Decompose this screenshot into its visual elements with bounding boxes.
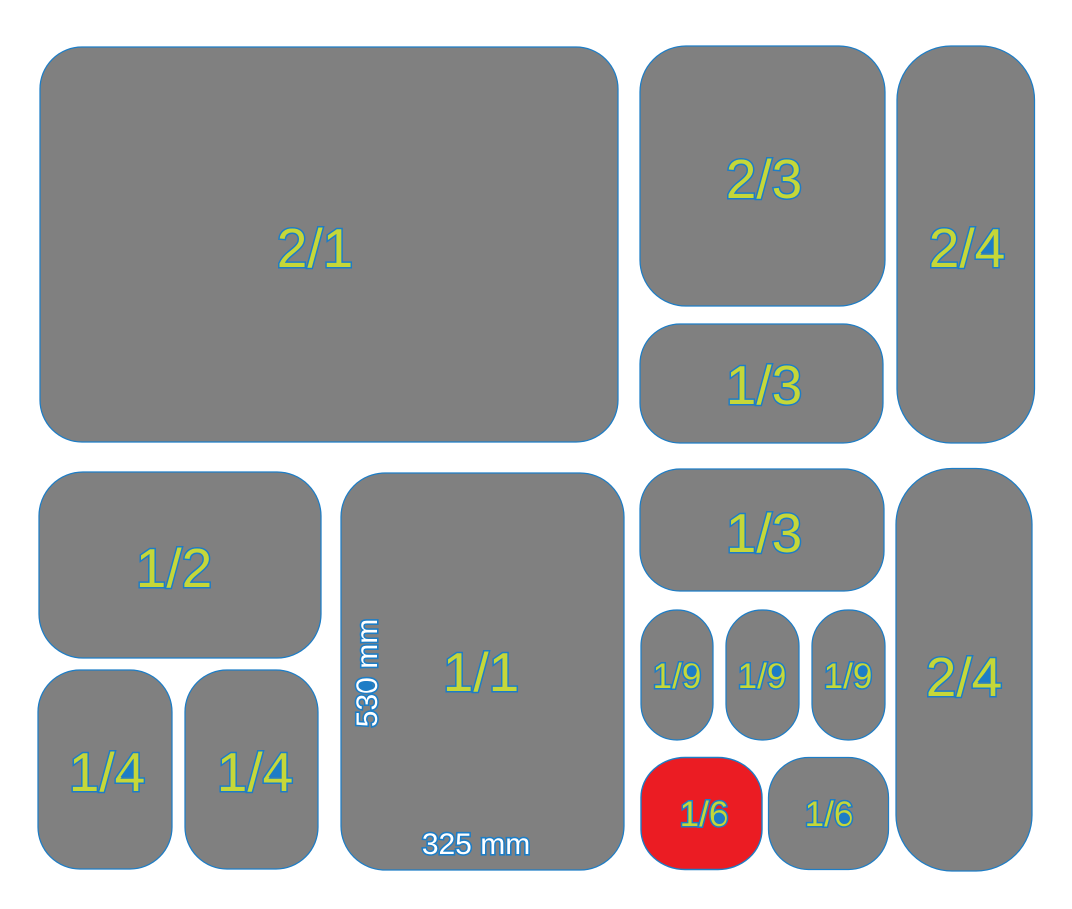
svg-text:2/4: 2/4 — [929, 217, 1005, 279]
svg-text:530 mm: 530 mm — [351, 619, 384, 727]
svg-text:1/9: 1/9 — [653, 657, 702, 696]
svg-text:1/9: 1/9 — [824, 657, 873, 696]
svg-text:2/1: 2/1 — [277, 217, 353, 279]
svg-text:1/4: 1/4 — [217, 741, 293, 803]
svg-text:1/3: 1/3 — [726, 502, 802, 564]
svg-text:325 mm: 325 mm — [422, 828, 530, 861]
svg-text:1/3: 1/3 — [726, 354, 802, 416]
svg-text:2/3: 2/3 — [726, 148, 802, 210]
svg-text:1/1: 1/1 — [443, 641, 519, 703]
svg-text:2/4: 2/4 — [926, 646, 1002, 708]
svg-text:1/9: 1/9 — [738, 657, 787, 696]
svg-text:1/4: 1/4 — [69, 741, 145, 803]
svg-text:1/2: 1/2 — [136, 537, 212, 599]
